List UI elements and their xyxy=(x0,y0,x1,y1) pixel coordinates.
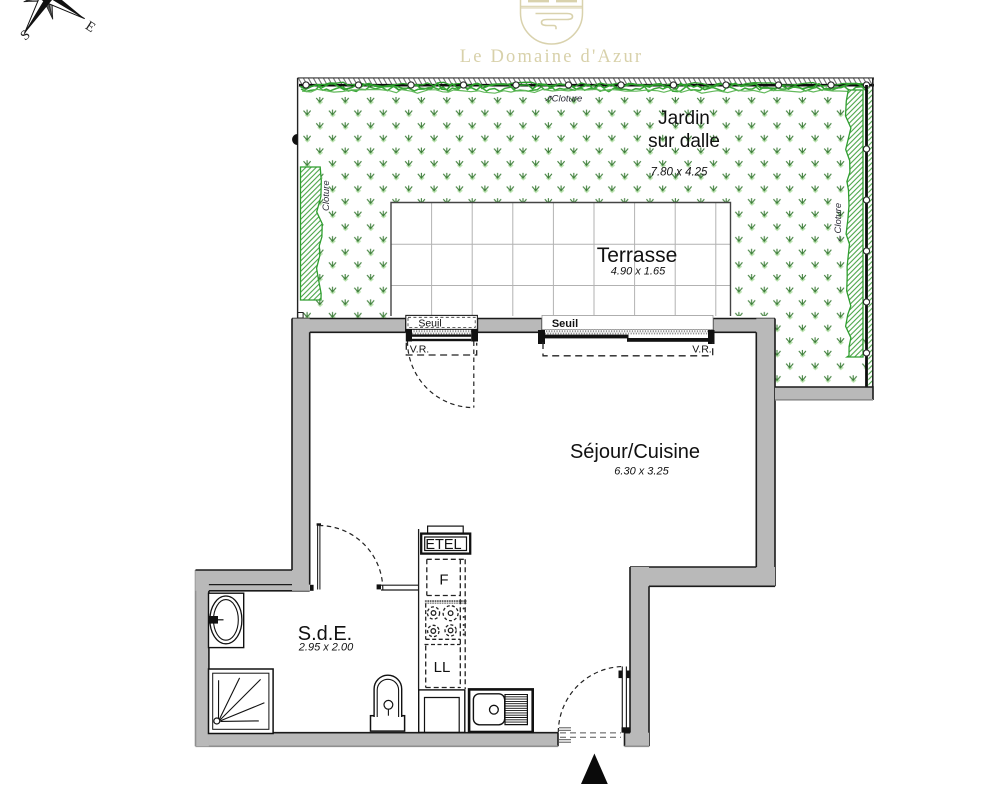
svg-text:Jardin: Jardin xyxy=(658,108,710,129)
svg-text:V.R.: V.R. xyxy=(692,344,711,356)
svg-text:4.90 x 1.65: 4.90 x 1.65 xyxy=(611,266,666,278)
svg-text:Seuil: Seuil xyxy=(552,318,578,330)
svg-text:LL: LL xyxy=(434,659,451,676)
svg-text:ETEL: ETEL xyxy=(425,537,461,553)
svg-text:Le Domaine d'Azur: Le Domaine d'Azur xyxy=(460,47,644,67)
svg-text:Séjour/Cuisine: Séjour/Cuisine xyxy=(570,441,700,463)
svg-text:↗Cloture: ↗Cloture xyxy=(544,94,583,105)
svg-text:Terrasse: Terrasse xyxy=(597,244,678,267)
svg-text:7.80 x 4.25: 7.80 x 4.25 xyxy=(651,167,709,179)
svg-text:V.R.: V.R. xyxy=(410,343,429,355)
svg-text:F: F xyxy=(439,572,448,589)
svg-text:sur dalle: sur dalle xyxy=(648,131,720,152)
svg-text:Cloture: Cloture xyxy=(321,180,332,211)
svg-text:Seuil: Seuil xyxy=(418,318,441,330)
svg-text:←Cloture: ←Cloture xyxy=(833,203,844,243)
svg-text:6.30 x 3.25: 6.30 x 3.25 xyxy=(614,466,669,478)
svg-text:2.95 x 2.00: 2.95 x 2.00 xyxy=(298,642,354,654)
